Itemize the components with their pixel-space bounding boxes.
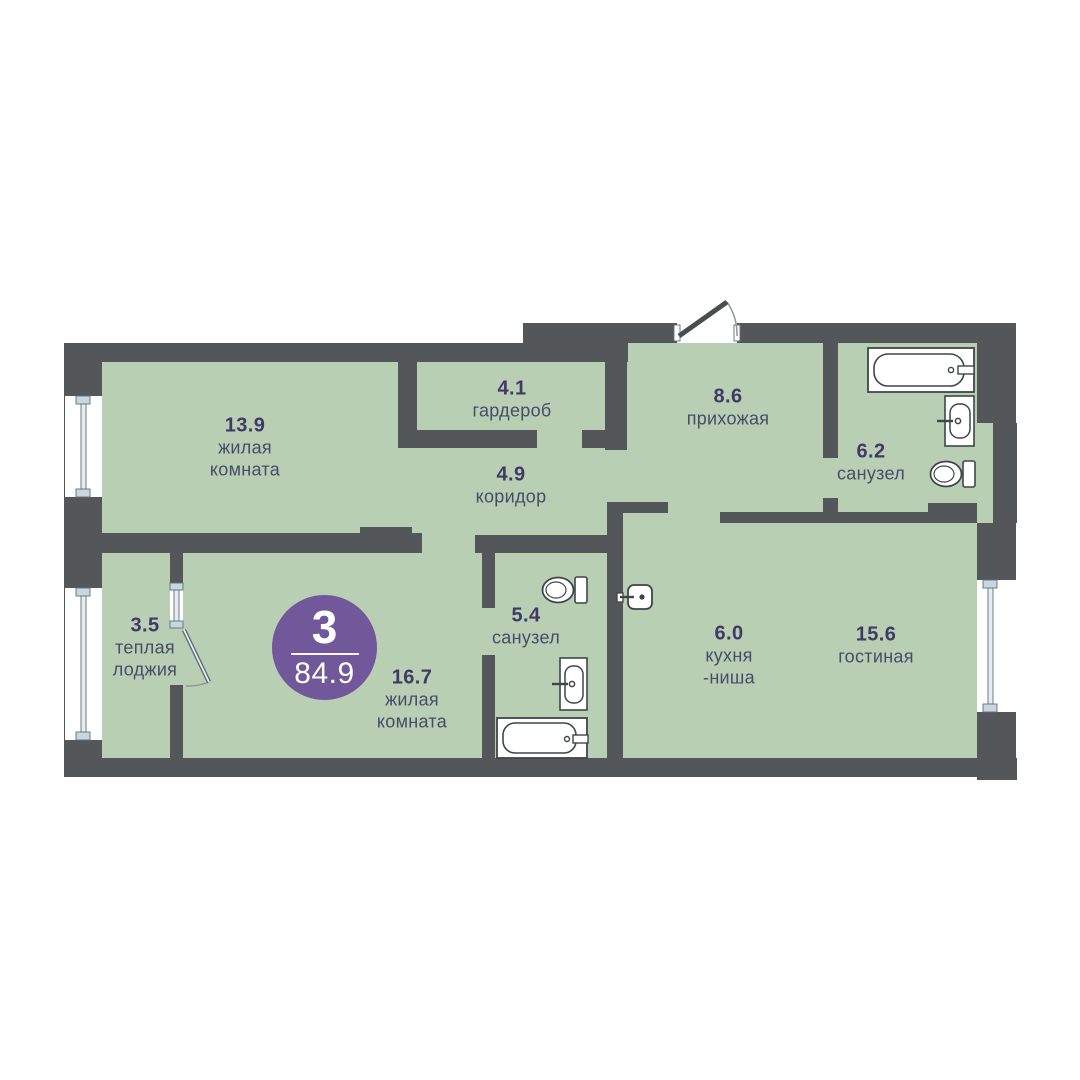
bathtub-icon — [497, 718, 588, 758]
rooms-count: 3 — [312, 604, 338, 650]
entrance-door-icon — [674, 302, 740, 341]
window-icon — [977, 580, 1013, 712]
floor-plan-drawing — [0, 0, 1080, 1080]
total-area: 84.9 — [294, 659, 354, 689]
apartment-summary-badge: 3 84.9 — [272, 595, 377, 700]
badge-divider — [291, 653, 359, 655]
floor-plan-page: 13.9 жилая комната 4.1 гардероб 4.9 кори… — [0, 0, 1080, 1080]
bathtub-icon — [868, 348, 974, 392]
toilet-icon — [543, 577, 588, 603]
toilet-icon — [931, 461, 976, 487]
window-icon — [65, 396, 102, 497]
window-icon — [65, 588, 102, 740]
window-icon — [170, 583, 183, 628]
